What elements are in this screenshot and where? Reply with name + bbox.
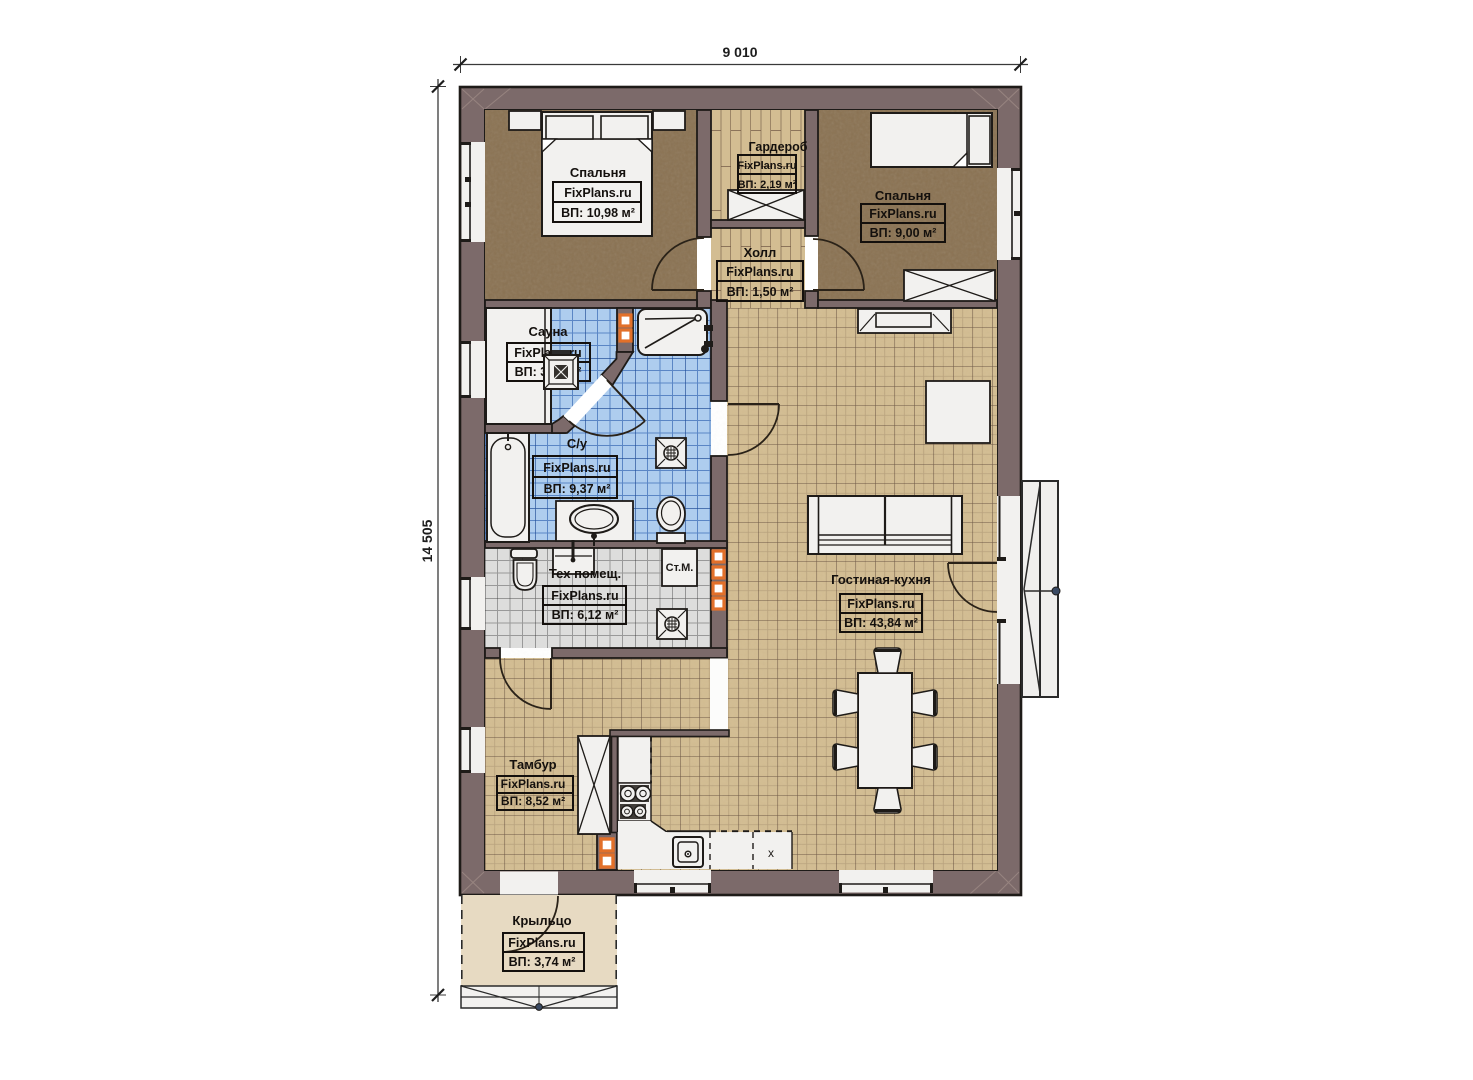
svg-text:Сауна: Сауна (528, 324, 568, 339)
svg-text:Тех помещ.: Тех помещ. (549, 566, 621, 581)
svg-text:ВП: 10,98 м²: ВП: 10,98 м² (561, 206, 635, 220)
svg-text:Тамбур: Тамбур (509, 757, 556, 772)
svg-text:Крыльцо: Крыльцо (512, 913, 571, 928)
svg-text:FixPlans.ru: FixPlans.ru (726, 265, 793, 279)
svg-text:ВП: 43,84 м²: ВП: 43,84 м² (844, 616, 918, 630)
svg-text:ВП: 1,50 м²: ВП: 1,50 м² (727, 285, 794, 299)
svg-text:Спальня: Спальня (875, 188, 931, 203)
svg-text:Спальня: Спальня (570, 165, 626, 180)
svg-text:ВП: 6,12 м²: ВП: 6,12 м² (552, 608, 619, 622)
svg-text:FixPlans.ru: FixPlans.ru (869, 207, 936, 221)
svg-text:FixPlans.ru: FixPlans.ru (501, 777, 566, 791)
svg-text:FixPlans.ru: FixPlans.ru (737, 160, 796, 172)
svg-text:ВП: 9,37 м²: ВП: 9,37 м² (544, 482, 611, 496)
svg-text:Холл: Холл (744, 245, 777, 260)
svg-text:FixPlans.ru: FixPlans.ru (543, 461, 610, 475)
svg-text:Гардероб: Гардероб (748, 140, 807, 154)
svg-text:14 505: 14 505 (419, 519, 435, 562)
svg-text:FixPlans.ru: FixPlans.ru (508, 936, 575, 950)
svg-text:FixPlans.ru: FixPlans.ru (551, 589, 618, 603)
svg-text:ВП: 8,52 м²: ВП: 8,52 м² (501, 794, 565, 808)
svg-text:FixPlans.ru: FixPlans.ru (847, 597, 914, 611)
svg-text:С/у: С/у (567, 436, 588, 451)
svg-text:Ст.М.: Ст.М. (666, 562, 694, 574)
svg-text:9 010: 9 010 (722, 44, 757, 60)
svg-text:ВП: 9,00 м²: ВП: 9,00 м² (870, 226, 937, 240)
svg-text:x: x (768, 846, 774, 860)
svg-text:Гостиная-кухня: Гостиная-кухня (831, 572, 931, 587)
svg-text:ВП: 3,74 м²: ВП: 3,74 м² (509, 955, 576, 969)
svg-text:ВП: 2,19 м²: ВП: 2,19 м² (738, 179, 797, 191)
svg-text:FixPlans.ru: FixPlans.ru (564, 186, 631, 200)
